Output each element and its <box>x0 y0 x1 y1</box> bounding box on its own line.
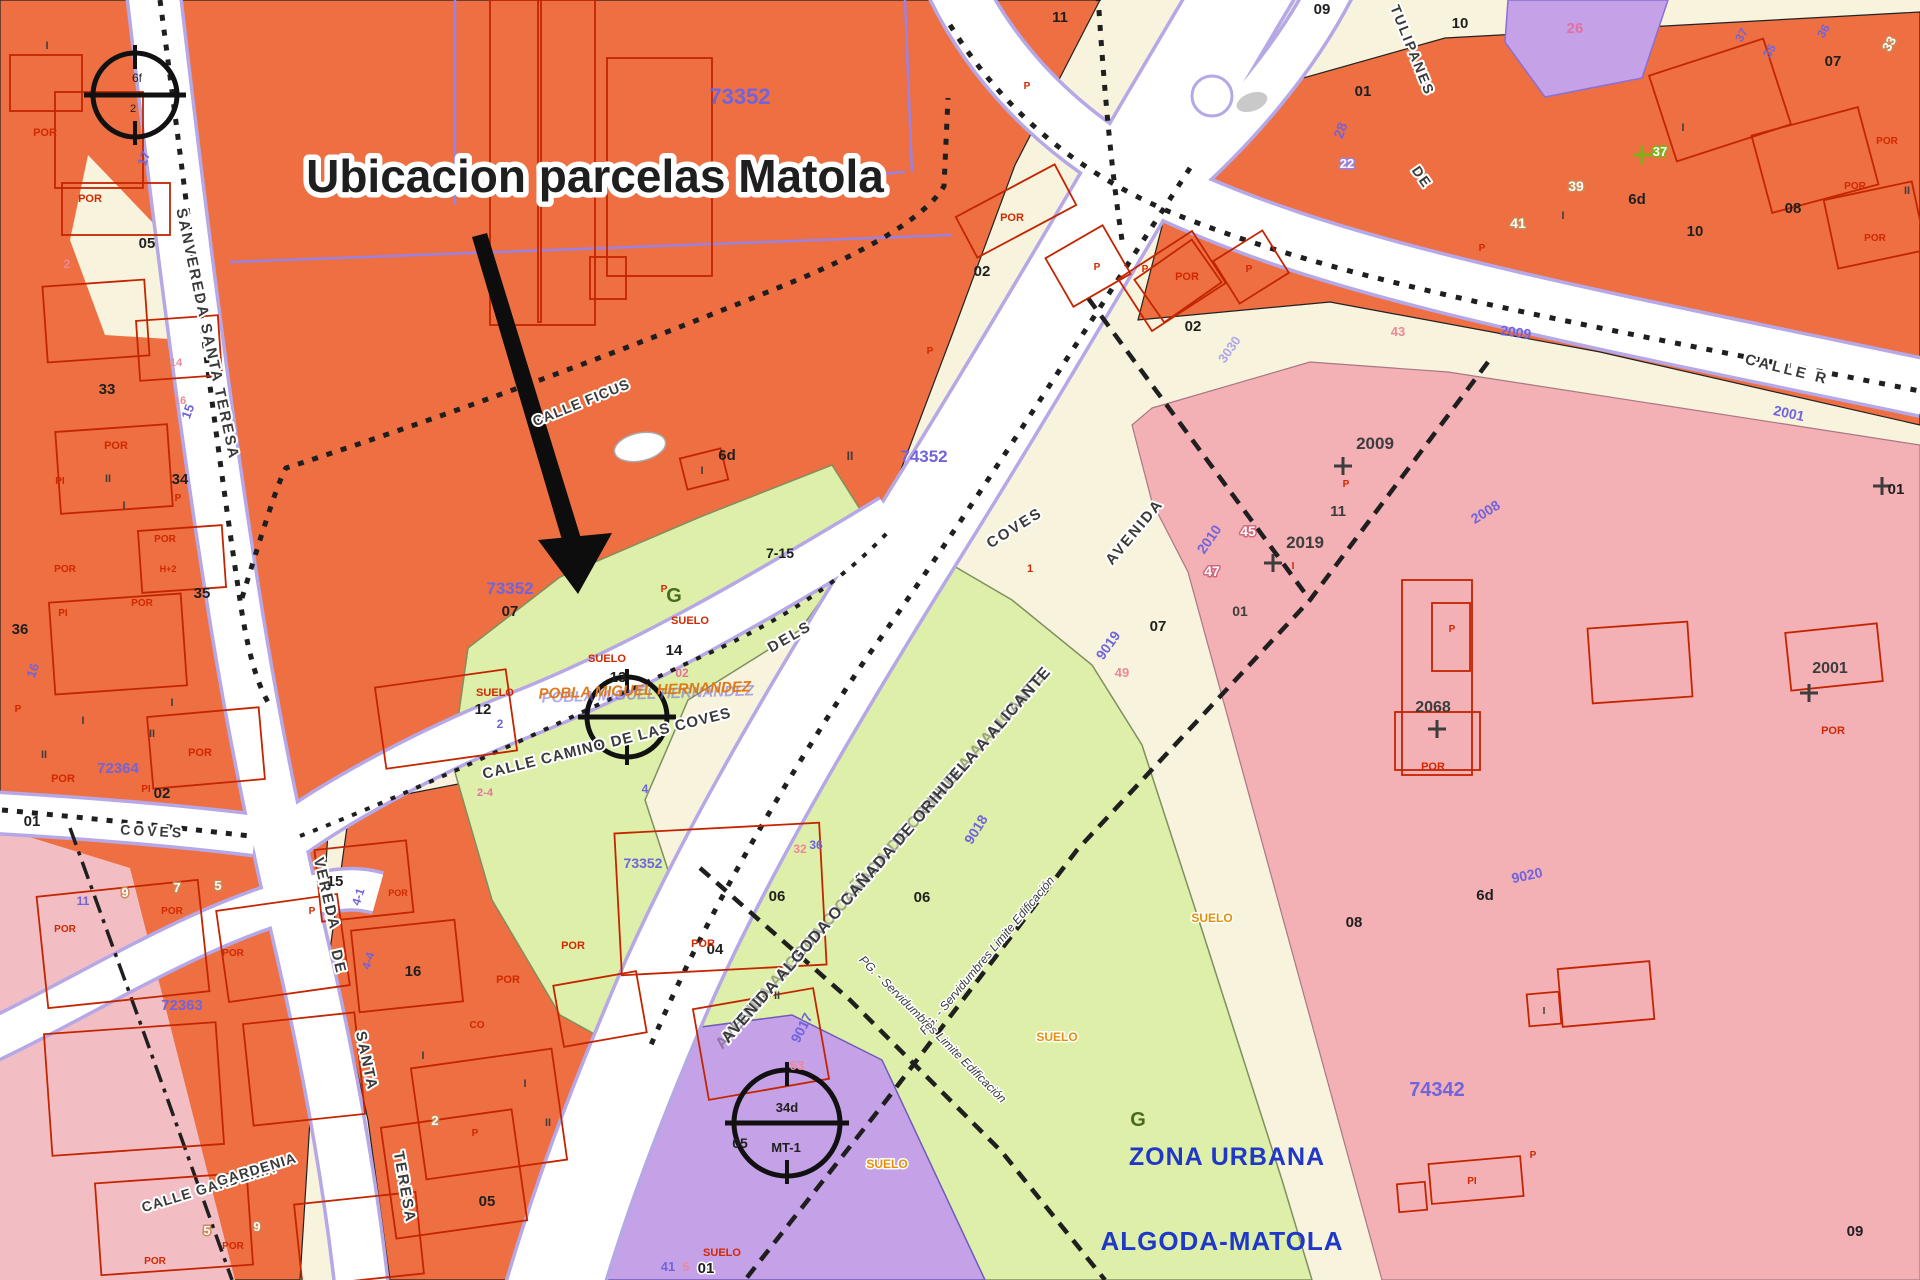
map-label: 45 <box>1240 523 1256 539</box>
map-label: II <box>545 1117 551 1129</box>
map-label: 10 <box>1452 15 1469 32</box>
map-label: 2068 <box>1415 699 1451 716</box>
map-label: 02 <box>675 666 689 680</box>
map-label: 05 <box>139 235 156 252</box>
map-label: 09 <box>1314 1 1331 18</box>
map-label: 02 <box>1185 318 1202 335</box>
map-label: II <box>774 990 780 1002</box>
map-label: 32 <box>793 842 807 856</box>
map-label: 08 <box>1785 200 1802 217</box>
map-label: P <box>1246 264 1253 275</box>
map-label: SUELO <box>671 615 709 627</box>
map-label: POR <box>188 747 212 759</box>
map-label: 10 <box>1687 223 1704 240</box>
map-label: 9 <box>253 1219 260 1234</box>
map-label: CO <box>470 1020 485 1031</box>
map-label: 33 <box>99 381 116 398</box>
parcel-72363: 72363 <box>161 997 203 1014</box>
cadastral-map: Ubicacion parcelas MatolaSANVEREDA SANTA… <box>0 0 1920 1280</box>
map-label: SUELO <box>1191 911 1232 925</box>
map-label: P <box>15 704 22 715</box>
map-label: POR <box>561 940 585 952</box>
map-label: 01 <box>1232 603 1248 619</box>
map-label: POR <box>78 193 102 205</box>
map-label: I <box>45 40 48 52</box>
map-label: I <box>170 697 173 709</box>
map-label: 2 <box>130 103 136 115</box>
map-label: POR <box>222 1241 244 1252</box>
map-label: II <box>847 449 854 463</box>
marker-34d: 34d <box>776 1100 798 1115</box>
map-label: P <box>309 906 316 917</box>
map-label: I <box>523 1078 526 1090</box>
map-label: 7 <box>173 880 180 895</box>
map-label: POR <box>1864 233 1886 244</box>
map-label: 01 <box>1888 481 1905 498</box>
map-label: P <box>927 346 934 357</box>
map-label: SUELO <box>588 653 626 665</box>
map-label: P <box>1094 262 1101 273</box>
map-label: 7-15 <box>766 545 794 561</box>
map-label: 08 <box>1346 914 1363 931</box>
map-label: I <box>1681 122 1684 134</box>
map-label: 02 <box>974 263 991 280</box>
map-label: POR <box>222 948 244 959</box>
map-label: 07 <box>502 603 519 620</box>
map-label: P <box>1142 264 1149 275</box>
marker-6f: 6f <box>132 71 143 85</box>
map-label: 1 <box>1027 563 1033 575</box>
map-label: 16 <box>405 963 422 980</box>
map-label: 35 <box>194 585 211 602</box>
map-label: 05 <box>479 1193 496 1210</box>
map-label: 06 <box>769 888 786 905</box>
map-label: 2 <box>497 717 504 731</box>
map-label: PI <box>55 476 65 487</box>
map-label: POR <box>131 598 153 609</box>
map-label: 49 <box>1115 665 1129 680</box>
map-label: 01 <box>1355 83 1372 100</box>
zone-label-g2: G <box>1130 1109 1146 1131</box>
map-label: POR <box>1000 212 1024 224</box>
map-label: 6d <box>1476 887 1494 904</box>
map-label: POR <box>691 938 715 950</box>
map-label: 12 <box>475 701 492 718</box>
map-label: POR <box>1821 725 1845 737</box>
map-label: 11 <box>77 894 90 908</box>
map-label: POR <box>144 1256 166 1267</box>
map-label: H+2 <box>160 564 177 574</box>
street-coves-west: COVES <box>120 821 185 840</box>
map-label: 41 <box>661 1259 675 1274</box>
map-label: II <box>41 749 47 761</box>
map-label: POR <box>51 773 75 785</box>
map-label: 07 <box>1825 53 1842 70</box>
map-label: 01 <box>24 813 41 830</box>
map-label: 22 <box>1340 156 1354 171</box>
map-label: 34 <box>172 471 189 488</box>
map-label: POR <box>388 888 408 898</box>
map-label: 6d <box>718 447 736 464</box>
map-label: 39 <box>1568 178 1584 194</box>
map-label: I <box>1292 561 1295 572</box>
map-label: 06 <box>914 889 931 906</box>
map-label: SUELO <box>476 687 514 699</box>
map-label: 15 <box>327 873 344 890</box>
label-algoda-matola: ALGODA-MATOLA <box>1100 1226 1343 1256</box>
map-label: POR <box>1175 271 1199 283</box>
map-label: 2009 <box>1356 434 1394 453</box>
map-label: 2 <box>431 1113 438 1128</box>
map-label: 43 <box>1391 324 1405 339</box>
map-label: P <box>472 1128 479 1139</box>
map-label: POR <box>161 906 183 917</box>
map-label: POR <box>1844 181 1866 192</box>
map-label: 5 <box>203 1223 210 1238</box>
parcel-73352: 73352 <box>709 84 770 109</box>
marker-mt1: MT-1 <box>771 1140 801 1155</box>
label-zona-urbana: ZONA URBANA <box>1129 1143 1325 1171</box>
map-label: SUELO <box>703 1247 741 1259</box>
map-label: 07 <box>1150 618 1167 635</box>
map-label: P <box>661 584 668 595</box>
map-label: POR <box>496 974 520 986</box>
map-label: POR <box>33 127 57 139</box>
map-label: 36 <box>12 621 29 638</box>
map-label: POR <box>54 564 76 575</box>
map-label: 36 <box>809 838 823 852</box>
map-label: 11 <box>1330 503 1346 520</box>
map-label: 14 <box>666 642 683 659</box>
map-label: I <box>1561 210 1564 222</box>
map-label: P <box>1479 243 1486 254</box>
map-label: POR <box>1421 761 1445 773</box>
map-label: II <box>1904 185 1910 197</box>
map-label: POR <box>154 534 176 545</box>
map-label: I <box>421 1050 424 1062</box>
map-label: SUELO <box>1036 1030 1077 1044</box>
parcel-74342: 74342 <box>1409 1079 1465 1101</box>
map-label: 4 <box>642 782 649 796</box>
map-label: PI <box>58 608 68 619</box>
map-label: 26 <box>1567 20 1584 37</box>
map-label: I <box>122 500 125 512</box>
map-label: P <box>1449 624 1456 635</box>
map-label: P <box>1343 479 1350 490</box>
map-label: 16 <box>174 395 186 407</box>
map-label: 2019 <box>1286 533 1324 552</box>
zone-label-g1: G <box>666 585 682 607</box>
map-label: I <box>81 715 84 727</box>
map-label: P <box>1024 81 1031 92</box>
map-label: P <box>1530 1150 1537 1161</box>
map-label: POR <box>104 440 128 452</box>
parcel-74352: 74352 <box>900 447 947 466</box>
map-label: 47 <box>1204 563 1220 579</box>
parcel-73352-3: 73352 <box>624 855 663 871</box>
map-label: 14 <box>170 357 183 369</box>
map-label: POR <box>1876 136 1898 147</box>
cadastral-map-stage: Ubicacion parcelas MatolaSANVEREDA SANTA… <box>0 0 1920 1280</box>
map-label: 53 <box>790 1058 804 1073</box>
parcel-72364: 72364 <box>97 760 139 777</box>
map-label: P <box>175 493 182 504</box>
map-label: POR <box>54 924 76 935</box>
map-label: 01 <box>698 1260 715 1277</box>
map-label: 9 <box>121 885 128 900</box>
map-label: 09 <box>1847 1223 1864 1240</box>
map-label: PI <box>141 784 151 795</box>
map-label: 5 <box>683 1260 690 1274</box>
map-title: Ubicacion parcelas Matola <box>306 150 884 202</box>
map-label: 11 <box>1052 9 1068 26</box>
map-label: 13 <box>610 669 627 686</box>
map-label: I <box>700 465 703 477</box>
map-label: 2 <box>64 257 71 271</box>
map-label: 2001 <box>1812 660 1848 677</box>
map-label: PI <box>1467 1176 1477 1187</box>
road-island <box>1192 76 1232 116</box>
map-label: 05 <box>732 1135 748 1151</box>
map-label: 41 <box>1510 215 1526 231</box>
map-label: 6d <box>1628 191 1646 208</box>
map-label: 02 <box>154 785 171 802</box>
map-label: II <box>105 473 111 485</box>
map-label: SUELO <box>866 1157 907 1171</box>
map-label: II <box>149 728 155 740</box>
map-label: 37 <box>1653 144 1667 159</box>
map-label: 2-4 <box>477 787 494 799</box>
parcel-73352-2: 73352 <box>486 579 533 598</box>
map-label: 5 <box>214 878 221 893</box>
map-label: I <box>1543 1006 1546 1017</box>
